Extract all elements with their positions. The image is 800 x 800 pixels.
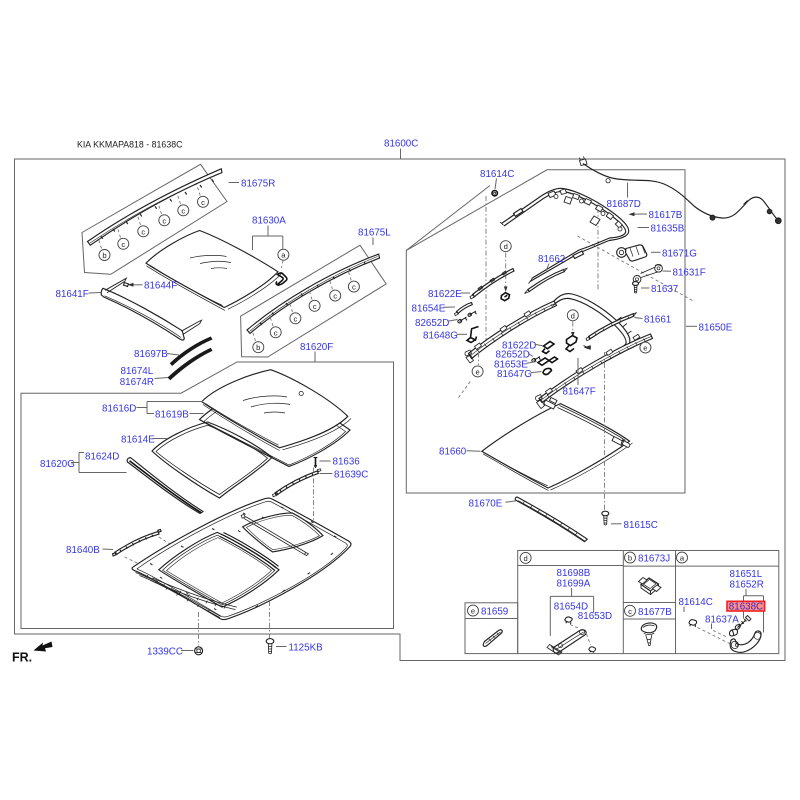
svg-text:KIA KKMAPA818 - 81638C: KIA KKMAPA818 - 81638C (77, 140, 183, 150)
svg-text:c: c (162, 216, 166, 225)
svg-text:c: c (333, 292, 337, 301)
svg-text:81661: 81661 (644, 314, 671, 325)
svg-text:81617B: 81617B (649, 210, 683, 221)
svg-text:81660: 81660 (439, 446, 467, 457)
svg-text:81630A: 81630A (252, 216, 286, 227)
svg-text:1125KB: 1125KB (289, 642, 324, 653)
svg-text:81620F: 81620F (300, 342, 333, 353)
svg-text:81631F: 81631F (673, 267, 706, 278)
svg-text:81698B: 81698B (557, 568, 591, 579)
svg-text:81614E: 81614E (121, 435, 155, 446)
svg-text:81638C: 81638C (729, 602, 763, 613)
svg-text:c: c (352, 283, 356, 292)
svg-text:b: b (628, 554, 632, 563)
svg-text:81624D: 81624D (85, 452, 119, 463)
svg-text:81637: 81637 (651, 284, 678, 295)
svg-text:82652D: 82652D (415, 318, 449, 329)
svg-text:81675R: 81675R (241, 179, 275, 190)
svg-text:81677B: 81677B (638, 607, 672, 618)
svg-text:81647G: 81647G (497, 369, 532, 380)
svg-text:FR.: FR. (12, 651, 32, 665)
svg-text:81600C: 81600C (384, 139, 418, 150)
svg-text:e: e (643, 344, 647, 353)
svg-text:c: c (201, 198, 205, 207)
svg-text:81674R: 81674R (120, 377, 154, 388)
svg-text:c: c (294, 314, 298, 323)
svg-text:81644F: 81644F (144, 280, 177, 291)
svg-text:c: c (274, 328, 278, 337)
svg-text:c: c (628, 607, 632, 616)
svg-text:81619B: 81619B (155, 410, 189, 421)
svg-text:81687D: 81687D (607, 199, 641, 210)
svg-text:81648G: 81648G (423, 330, 458, 341)
svg-text:81622E: 81622E (428, 289, 462, 300)
svg-text:81651L: 81651L (730, 569, 763, 580)
svg-text:d: d (504, 242, 508, 251)
svg-text:81675L: 81675L (358, 228, 391, 239)
svg-text:81674L: 81674L (121, 366, 154, 377)
svg-text:81614C: 81614C (679, 597, 713, 608)
svg-text:b: b (256, 343, 260, 352)
svg-text:81647F: 81647F (563, 386, 596, 397)
svg-text:81654E: 81654E (412, 303, 446, 314)
svg-text:81635B: 81635B (651, 223, 685, 234)
svg-text:81652R: 81652R (730, 580, 764, 591)
svg-text:e: e (475, 367, 479, 376)
svg-text:1339CC: 1339CC (147, 647, 183, 658)
svg-text:81615C: 81615C (624, 520, 658, 531)
svg-text:81659: 81659 (481, 607, 508, 618)
svg-text:81639C: 81639C (334, 470, 368, 481)
svg-text:d: d (571, 311, 575, 320)
svg-text:c: c (181, 206, 185, 215)
svg-text:81636: 81636 (333, 457, 361, 468)
svg-text:81670E: 81670E (469, 498, 503, 509)
svg-text:c: c (141, 227, 145, 236)
svg-text:81641F: 81641F (56, 289, 89, 300)
svg-text:c: c (313, 302, 317, 311)
svg-text:81662: 81662 (538, 254, 565, 265)
svg-text:e: e (471, 607, 475, 616)
svg-text:81673J: 81673J (638, 554, 670, 565)
svg-text:81616D: 81616D (102, 404, 136, 415)
svg-text:81620G: 81620G (40, 459, 75, 470)
svg-text:b: b (102, 251, 106, 260)
svg-text:81637A: 81637A (705, 614, 739, 625)
svg-text:81614C: 81614C (480, 169, 514, 180)
svg-text:d: d (523, 554, 527, 563)
svg-text:81653D: 81653D (578, 611, 612, 622)
svg-text:81650E: 81650E (699, 322, 733, 333)
svg-text:81699A: 81699A (557, 579, 591, 590)
svg-text:81697B: 81697B (134, 349, 168, 360)
svg-text:c: c (121, 240, 125, 249)
svg-text:81640B: 81640B (66, 545, 100, 556)
svg-text:81671G: 81671G (662, 248, 697, 259)
